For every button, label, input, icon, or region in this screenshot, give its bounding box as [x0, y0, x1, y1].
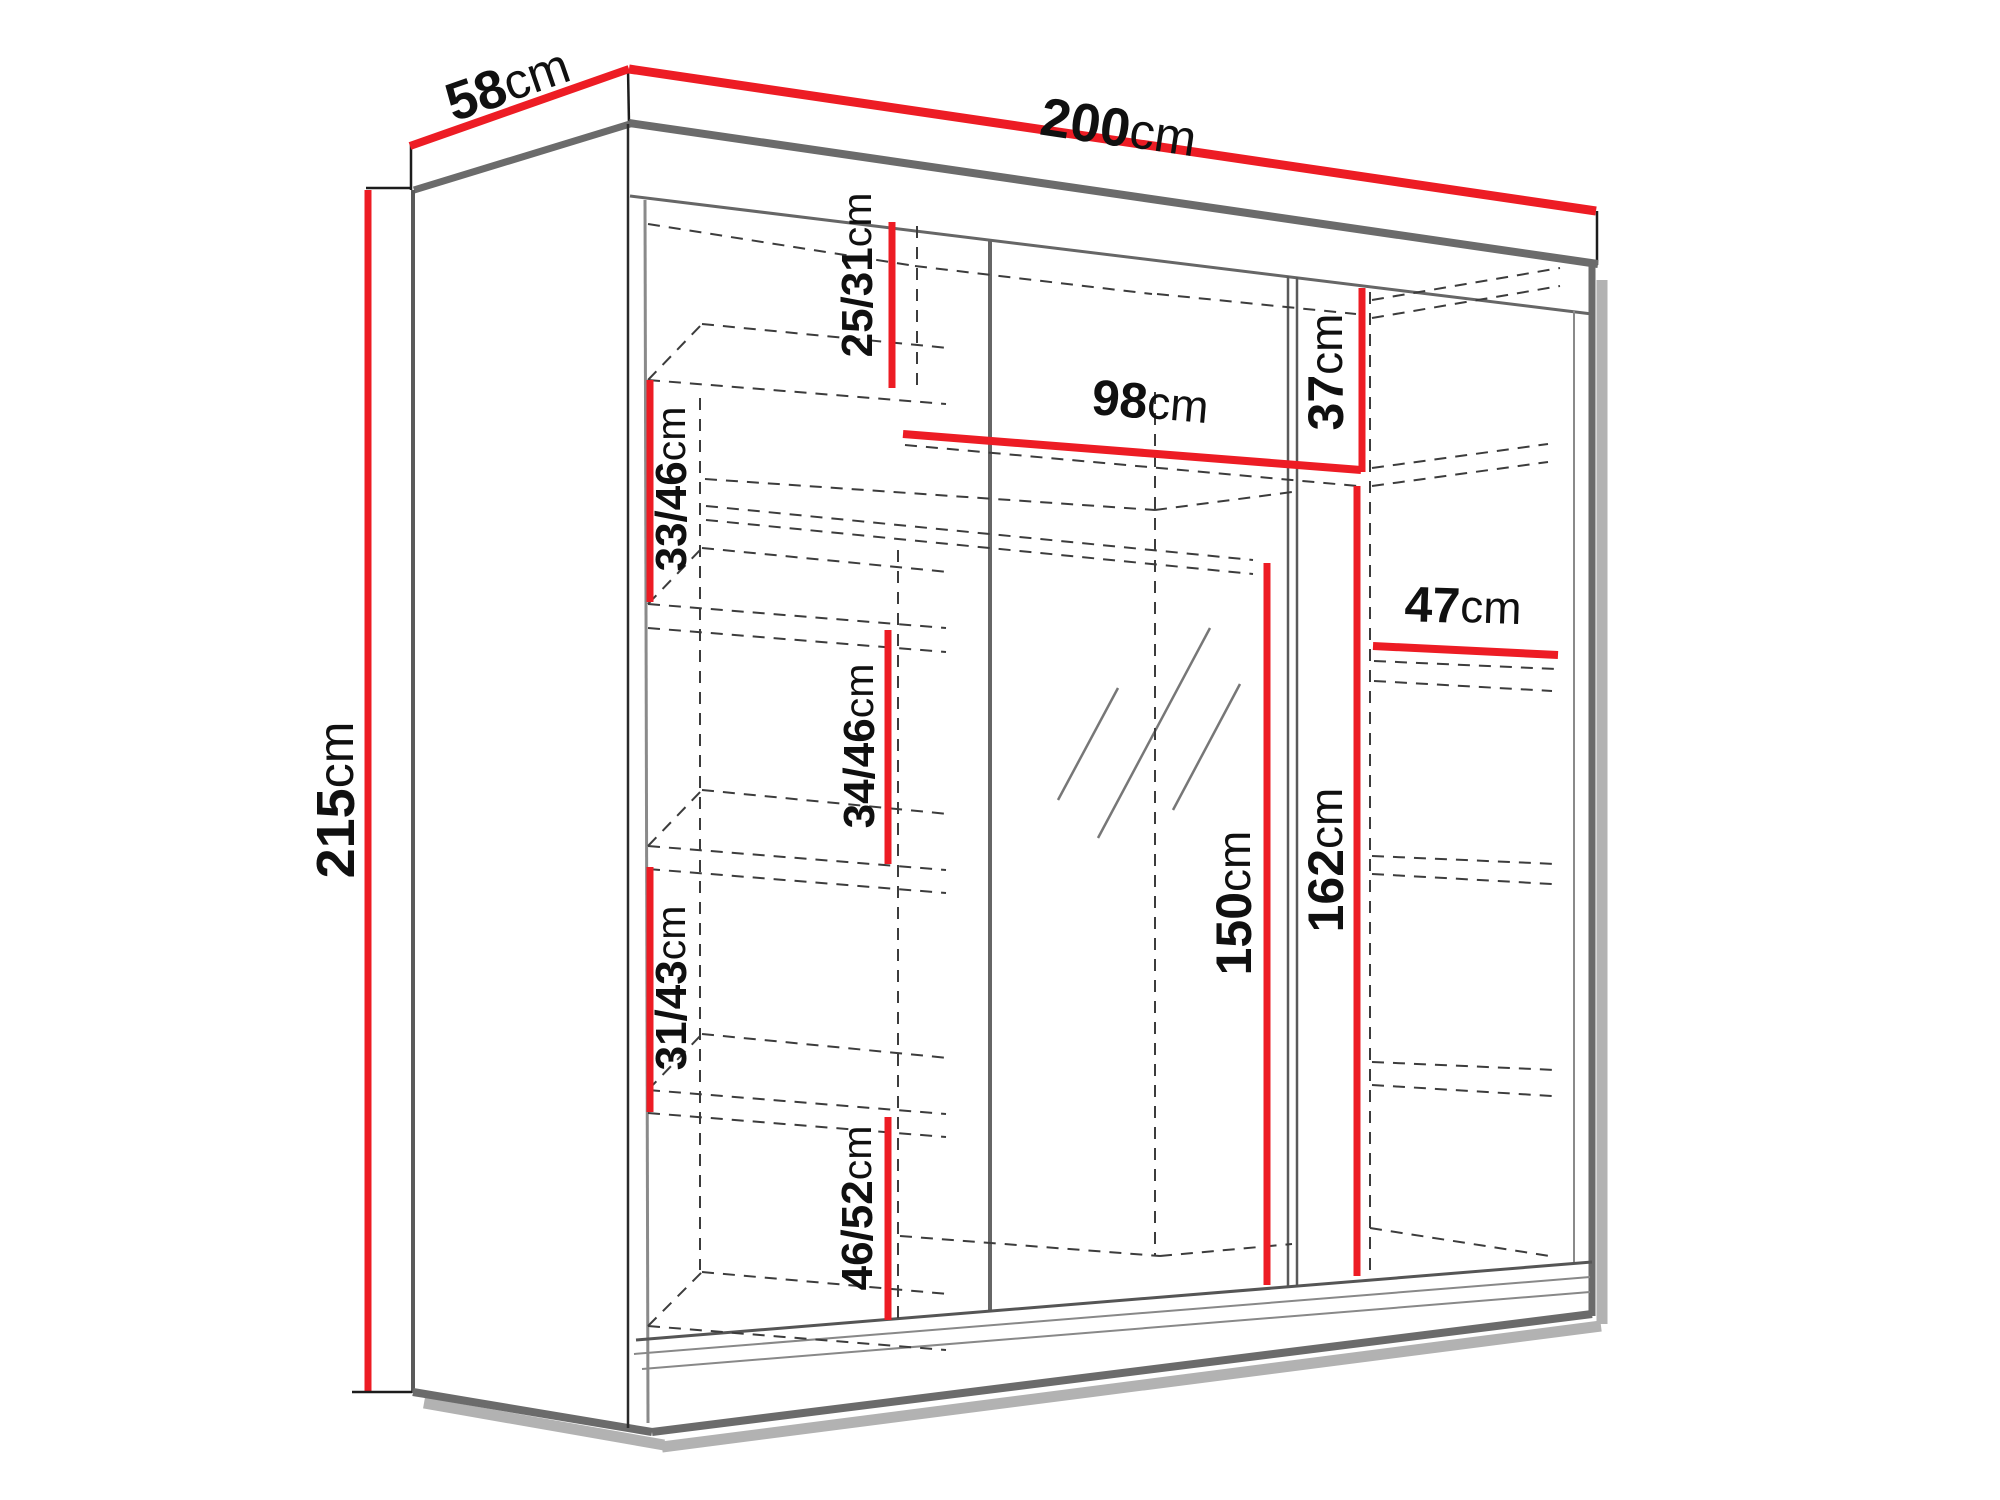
- label-46-52: 46/52cm: [833, 1126, 882, 1291]
- label-33-46: 33/46cm: [647, 407, 696, 572]
- diagram-canvas: 58cm 200cm 215cm 25/31cm 98cm 37cm 33/46…: [0, 0, 2000, 1500]
- label-47: 47cm: [1404, 576, 1523, 636]
- label-31-43: 31/43cm: [647, 906, 696, 1071]
- label-162: 162cm: [1298, 788, 1354, 933]
- label-37: 37cm: [1298, 314, 1354, 431]
- label-25-31: 25/31cm: [833, 193, 882, 358]
- label-98: 98cm: [1090, 369, 1211, 435]
- mirror-glints: [1058, 628, 1240, 838]
- label-215: 215cm: [306, 722, 366, 879]
- label-58: 58cm: [438, 35, 577, 133]
- label-200: 200cm: [1037, 87, 1201, 170]
- dimension-lines: [368, 69, 1596, 1392]
- label-34-46: 34/46cm: [835, 664, 884, 829]
- dimension-line-47: [1373, 646, 1558, 655]
- label-150: 150cm: [1206, 831, 1262, 976]
- wardrobe-dimension-diagram: 58cm 200cm 215cm 25/31cm 98cm 37cm 33/46…: [0, 0, 2000, 1500]
